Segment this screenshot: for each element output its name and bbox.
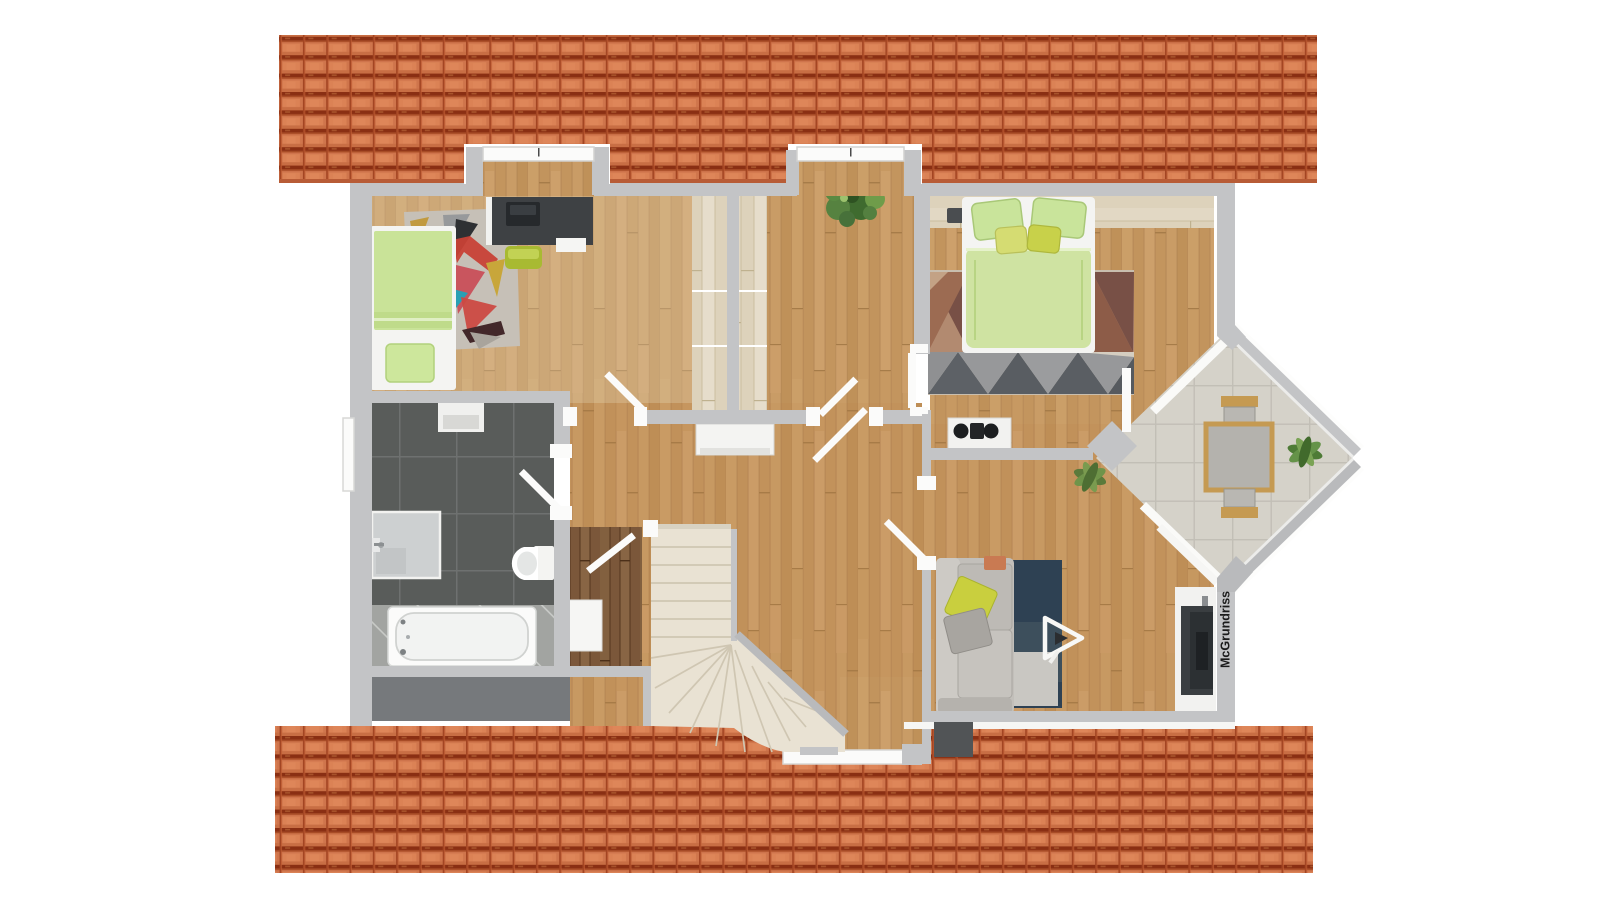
- svg-text:McGrundriss: McGrundriss: [1219, 591, 1233, 668]
